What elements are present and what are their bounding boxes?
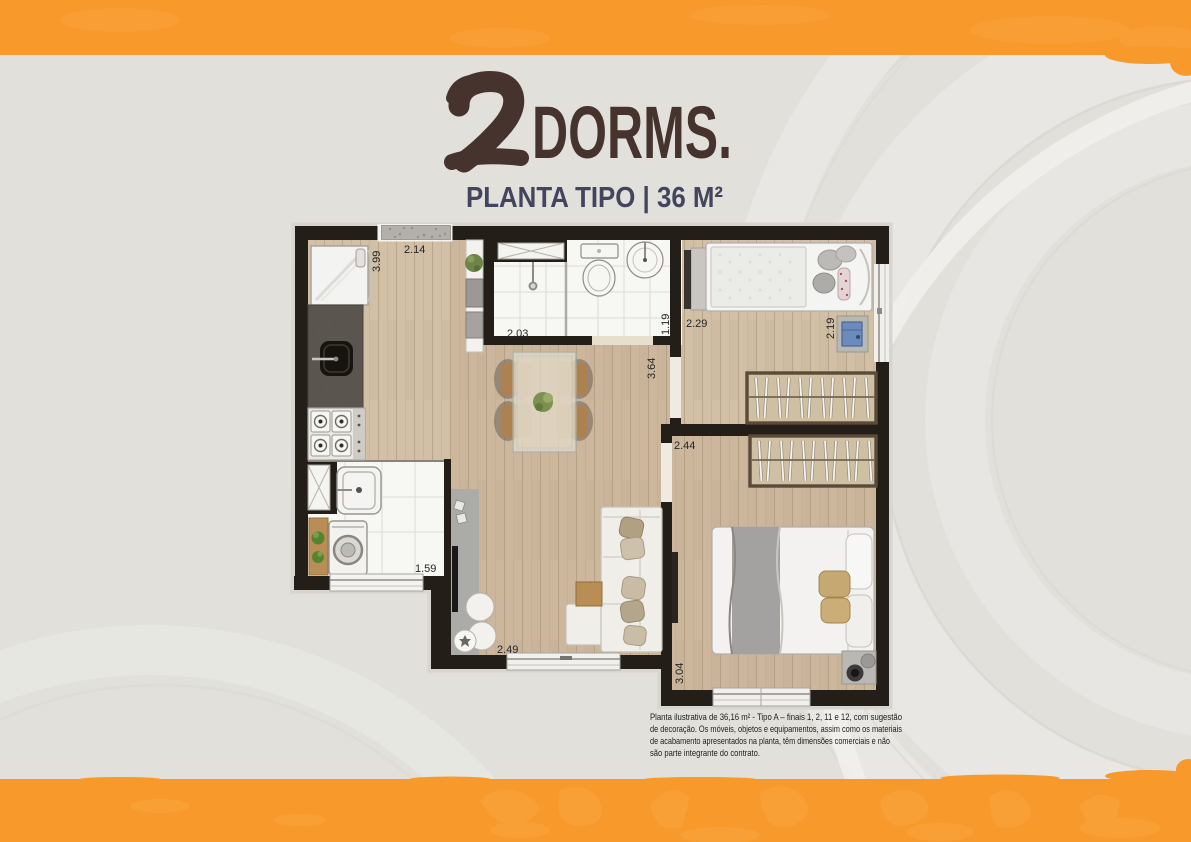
svg-text:3.99: 3.99: [371, 251, 383, 272]
svg-text:2.19: 2.19: [825, 318, 837, 339]
svg-text:de acabamento apresentados na: de acabamento apresentados na planta, tê…: [650, 736, 890, 747]
svg-text:2.29: 2.29: [686, 318, 707, 330]
svg-text:1.19: 1.19: [660, 314, 672, 335]
svg-text:1.59: 1.59: [415, 563, 436, 575]
svg-text:3.04: 3.04: [674, 663, 686, 684]
svg-text:2.49: 2.49: [497, 644, 518, 656]
svg-text:DORMS.: DORMS.: [532, 91, 732, 174]
svg-text:2.03: 2.03: [507, 328, 528, 340]
svg-text:PLANTA TIPO | 36 M²: PLANTA TIPO | 36 M²: [466, 182, 723, 214]
svg-text:3.64: 3.64: [646, 358, 658, 379]
svg-text:2.14: 2.14: [404, 244, 425, 256]
svg-text:2.44: 2.44: [674, 440, 695, 452]
svg-text:Planta ilustrativa de 36,16 m²: Planta ilustrativa de 36,16 m² - Tipo A …: [650, 712, 902, 723]
svg-text:de decoração. Os móveis, objet: de decoração. Os móveis, objetos e equip…: [650, 724, 902, 735]
svg-text:são parte integrante do contra: são parte integrante do contrato.: [650, 748, 760, 759]
